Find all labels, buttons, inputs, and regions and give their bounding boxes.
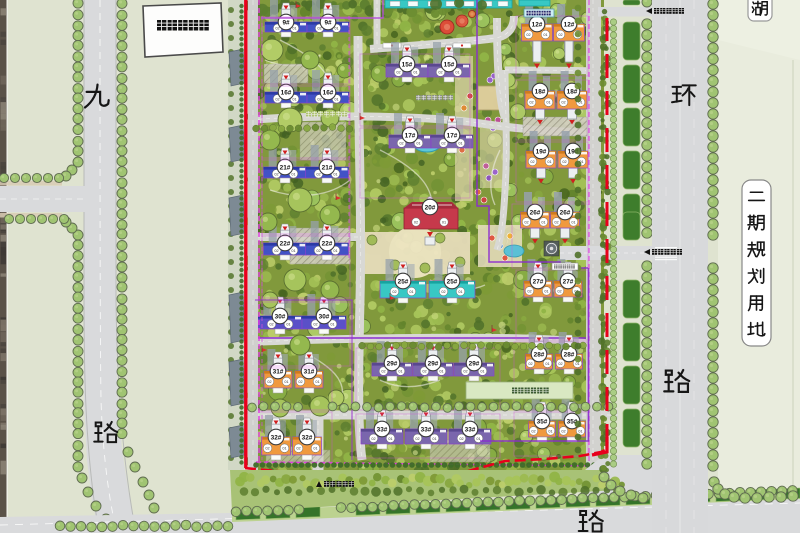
svg-text:29#: 29# [469, 360, 480, 367]
svg-text:01: 01 [313, 447, 317, 451]
svg-text:02: 02 [562, 160, 566, 164]
svg-text:01: 01 [413, 71, 417, 75]
svg-text:02: 02 [313, 323, 317, 327]
svg-text:31#: 31# [304, 368, 315, 375]
svg-text:02: 02 [275, 27, 279, 31]
svg-text:19#: 19# [536, 148, 547, 155]
svg-text:01: 01 [388, 437, 392, 441]
svg-text:02: 02 [528, 362, 532, 366]
svg-text:18#: 18# [567, 88, 578, 95]
svg-text:01: 01 [284, 380, 288, 384]
svg-text:17#: 17# [447, 132, 458, 139]
svg-text:15#: 15# [444, 61, 455, 68]
svg-text:26#: 26# [530, 209, 541, 216]
svg-text:01: 01 [548, 429, 552, 433]
svg-text:02: 02 [422, 370, 426, 374]
svg-text:02: 02 [561, 429, 565, 433]
svg-text:22#: 22# [322, 240, 333, 247]
svg-text:01: 01 [292, 27, 296, 31]
svg-text:02: 02 [267, 380, 271, 384]
svg-text:02: 02 [441, 142, 445, 146]
svg-text:01: 01 [458, 290, 462, 294]
svg-text:02: 02 [414, 221, 418, 225]
svg-text:01: 01 [545, 362, 549, 366]
svg-text:21#: 21# [322, 164, 333, 171]
svg-text:01: 01 [416, 142, 420, 146]
svg-text:01: 01 [571, 220, 575, 224]
svg-text:02: 02 [554, 220, 558, 224]
svg-text:25#: 25# [398, 278, 409, 285]
svg-text:12#: 12# [532, 21, 543, 28]
svg-text:01: 01 [330, 323, 334, 327]
svg-text:02: 02 [371, 437, 375, 441]
svg-text:27#: 27# [533, 278, 544, 285]
svg-text:01: 01 [333, 172, 337, 176]
svg-text:01: 01 [547, 160, 551, 164]
svg-text:01: 01 [458, 142, 462, 146]
svg-text:01: 01 [544, 289, 548, 293]
svg-text:01: 01 [292, 97, 296, 101]
svg-text:30#: 30# [319, 313, 330, 320]
svg-text:01: 01 [578, 429, 582, 433]
svg-text:02: 02 [459, 437, 463, 441]
svg-text:01: 01 [442, 221, 446, 225]
svg-text:02: 02 [527, 289, 531, 293]
svg-text:02: 02 [399, 142, 403, 146]
svg-text:01: 01 [334, 97, 338, 101]
svg-text:02: 02 [561, 101, 565, 105]
svg-text:02: 02 [415, 437, 419, 441]
svg-text:02: 02 [317, 97, 321, 101]
svg-text:15#: 15# [402, 61, 413, 68]
svg-text:02: 02 [557, 289, 561, 293]
svg-text:30#: 30# [275, 313, 286, 320]
svg-text:01: 01 [286, 323, 290, 327]
svg-text:35#: 35# [537, 418, 548, 425]
svg-text:02: 02 [438, 71, 442, 75]
svg-text:01: 01 [282, 447, 286, 451]
svg-text:01: 01 [439, 370, 443, 374]
svg-text:01: 01 [541, 220, 545, 224]
svg-text:02: 02 [463, 370, 467, 374]
svg-text:01: 01 [476, 437, 480, 441]
svg-text:02: 02 [396, 71, 400, 75]
svg-text:28#: 28# [564, 351, 575, 358]
svg-text:02: 02 [298, 380, 302, 384]
svg-text:9#: 9# [282, 19, 290, 26]
svg-text:02: 02 [529, 101, 533, 105]
svg-text:01: 01 [455, 71, 459, 75]
svg-text:31#: 31# [273, 368, 284, 375]
svg-text:17#: 17# [405, 132, 416, 139]
svg-text:33#: 33# [421, 426, 432, 433]
svg-text:01: 01 [291, 249, 295, 253]
svg-text:02: 02 [269, 323, 273, 327]
svg-text:28#: 28# [534, 351, 545, 358]
svg-text:02: 02 [441, 290, 445, 294]
svg-text:16#: 16# [281, 89, 292, 96]
svg-text:02: 02 [317, 27, 321, 31]
svg-text:02: 02 [274, 172, 278, 176]
svg-text:02: 02 [392, 290, 396, 294]
svg-text:01: 01 [398, 370, 402, 374]
svg-text:16#: 16# [323, 89, 334, 96]
svg-text:32#: 32# [302, 434, 313, 441]
svg-text:33#: 33# [377, 426, 388, 433]
svg-text:02: 02 [275, 97, 279, 101]
svg-text:02: 02 [531, 429, 535, 433]
svg-text:22#: 22# [280, 240, 291, 247]
svg-text:01: 01 [291, 172, 295, 176]
svg-text:01: 01 [409, 290, 413, 294]
svg-text:18#: 18# [535, 88, 546, 95]
svg-text:02: 02 [558, 362, 562, 366]
svg-text:01: 01 [315, 380, 319, 384]
svg-text:33#: 33# [465, 426, 476, 433]
svg-text:26#: 26# [560, 209, 571, 216]
svg-text:01: 01 [575, 362, 579, 366]
svg-text:02: 02 [530, 160, 534, 164]
svg-text:25#: 25# [447, 278, 458, 285]
svg-text:02: 02 [296, 447, 300, 451]
svg-text:02: 02 [265, 447, 269, 451]
svg-text:29#: 29# [428, 360, 439, 367]
svg-text:01: 01 [480, 370, 484, 374]
svg-text:21#: 21# [280, 164, 291, 171]
svg-text:02: 02 [524, 220, 528, 224]
svg-text:01: 01 [546, 101, 550, 105]
svg-text:02: 02 [381, 370, 385, 374]
svg-text:02: 02 [316, 249, 320, 253]
svg-text:01: 01 [543, 33, 547, 37]
svg-text:32#: 32# [271, 434, 282, 441]
svg-text:01: 01 [432, 437, 436, 441]
svg-text:20#: 20# [425, 204, 436, 211]
svg-text:02: 02 [316, 172, 320, 176]
svg-text:9#: 9# [324, 19, 332, 26]
svg-text:01: 01 [334, 27, 338, 31]
svg-text:01: 01 [333, 249, 337, 253]
svg-text:27#: 27# [563, 278, 574, 285]
svg-text:12#: 12# [564, 21, 575, 28]
svg-text:02: 02 [274, 249, 278, 253]
svg-text:02: 02 [558, 33, 562, 37]
svg-text:02: 02 [526, 33, 530, 37]
svg-text:29#: 29# [387, 360, 398, 367]
